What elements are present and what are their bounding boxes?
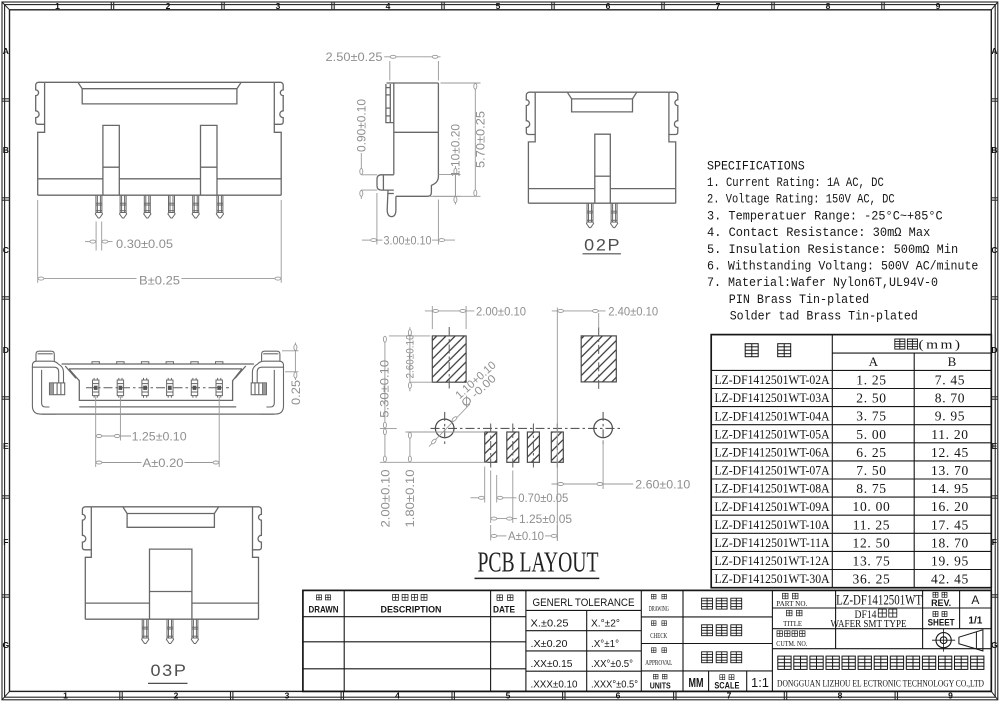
svg-text:G: G	[2, 640, 9, 650]
svg-text:E: E	[3, 441, 9, 451]
svg-text:1.25±0.05: 1.25±0.05	[519, 512, 572, 526]
svg-text:1: 1	[63, 691, 68, 701]
svg-text:DATE: DATE	[493, 604, 515, 614]
svg-text:0.30±0.05: 0.30±0.05	[116, 237, 173, 251]
svg-text:8. 70: 8. 70	[935, 391, 966, 406]
svg-text:1.25±0.10: 1.25±0.10	[132, 429, 187, 443]
svg-text:GENERL TOLERANCE: GENERL TOLERANCE	[533, 597, 635, 609]
svg-text:10. 00: 10. 00	[853, 499, 891, 514]
svg-text:03P: 03P	[151, 662, 188, 680]
svg-text:PCB LAYOUT: PCB LAYOUT	[478, 548, 599, 579]
svg-text:8: 8	[826, 1, 831, 11]
svg-text:2. 50: 2. 50	[856, 391, 887, 406]
svg-text:7. 45: 7. 45	[935, 373, 966, 388]
svg-text:LZ-DF1412501WT-10A: LZ-DF1412501WT-10A	[715, 518, 830, 532]
svg-text:SPECIFICATIONS: SPECIFICATIONS	[707, 159, 805, 173]
svg-text:A: A	[971, 593, 979, 607]
svg-text:LZ-DF1412501WT-11A: LZ-DF1412501WT-11A	[715, 536, 830, 550]
svg-text:5. 00: 5. 00	[856, 427, 887, 442]
svg-text:SHEET: SHEET	[928, 618, 955, 628]
svg-text:A±0.10: A±0.10	[508, 529, 544, 543]
svg-text:1: 1	[55, 1, 60, 11]
svg-text:A: A	[991, 46, 997, 56]
svg-text:02P: 02P	[584, 237, 621, 255]
svg-text:DONGGUAN LIZHOU EL ECTRONIC TE: DONGGUAN LIZHOU EL ECTRONIC TECHNOLOGY C…	[777, 679, 984, 689]
svg-text:CUTM. NO.: CUTM. NO.	[776, 640, 807, 648]
svg-text:12. 45: 12. 45	[931, 445, 969, 460]
svg-text:1. Current Rating: 1A AC, DC: 1. Current Rating: 1A AC, DC	[707, 176, 884, 190]
svg-text:2: 2	[166, 1, 171, 11]
svg-text:6: 6	[606, 1, 611, 11]
svg-text:2.60±0.10: 2.60±0.10	[405, 335, 417, 379]
svg-text:42. 45: 42. 45	[931, 572, 969, 587]
svg-text:LZ-DF1412501WT-07A: LZ-DF1412501WT-07A	[715, 464, 830, 478]
svg-text:14. 95: 14. 95	[931, 481, 969, 496]
svg-text:LZ-DF1412501WT-03A: LZ-DF1412501WT-03A	[715, 391, 830, 405]
svg-text:REV.: REV.	[931, 598, 951, 608]
svg-text:4: 4	[386, 1, 391, 11]
svg-text:SCALE: SCALE	[714, 680, 739, 690]
svg-text:9: 9	[936, 1, 941, 11]
svg-text:5.70±0.25: 5.70±0.25	[474, 111, 488, 168]
svg-text:6. 25: 6. 25	[856, 445, 887, 460]
svg-text:2.00±0.10: 2.00±0.10	[378, 469, 392, 527]
svg-text:DRAWING: DRAWING	[649, 604, 669, 613]
svg-text:2. Voltage Rating: 150V AC, DC: 2. Voltage Rating: 150V AC, DC	[707, 193, 895, 207]
svg-text:1.80±0.10: 1.80±0.10	[403, 469, 417, 527]
svg-text:.XX±0.15: .XX±0.15	[531, 659, 573, 670]
svg-text:3: 3	[285, 691, 290, 701]
svg-text:36. 25: 36. 25	[853, 572, 891, 587]
svg-text:6. Withstanding Voltang: 500V: 6. Withstanding Voltang: 500V AC/minute	[707, 260, 978, 274]
svg-text:5: 5	[496, 1, 501, 11]
svg-text:LZ-DF1412501WT-02A: LZ-DF1412501WT-02A	[715, 373, 830, 387]
svg-text:.XXX±0.10: .XXX±0.10	[531, 679, 578, 690]
svg-text:8. 75: 8. 75	[856, 481, 887, 496]
svg-text:LZ-DF1412501WT-05A: LZ-DF1412501WT-05A	[715, 427, 830, 441]
svg-text:B±0.25: B±0.25	[139, 274, 180, 288]
svg-text:UNITS: UNITS	[650, 681, 671, 690]
svg-text:LZ-DF1412501WT-08A: LZ-DF1412501WT-08A	[715, 482, 830, 496]
svg-text:LZ-DF1412501WT-04A: LZ-DF1412501WT-04A	[715, 409, 830, 423]
svg-text:3. 75: 3. 75	[856, 409, 887, 424]
svg-text:.X±0.20: .X±0.20	[531, 639, 568, 650]
svg-text:PART NO.: PART NO.	[776, 599, 807, 608]
svg-text:DESCRIPTION: DESCRIPTION	[381, 604, 442, 614]
svg-text:0.25: 0.25	[289, 380, 303, 405]
svg-text:Solder tad Brass Tin-plated: Solder tad Brass Tin-plated	[730, 310, 918, 324]
svg-text:X.±0.25: X.±0.25	[531, 619, 569, 630]
svg-text:1/1: 1/1	[968, 614, 982, 626]
svg-text:D: D	[3, 345, 9, 355]
svg-text:1. 25: 1. 25	[856, 373, 887, 388]
svg-text:16. 20: 16. 20	[931, 499, 969, 514]
svg-text:A±0.20: A±0.20	[143, 456, 184, 470]
svg-text:LZ-DF1412501WT-09A: LZ-DF1412501WT-09A	[715, 500, 830, 514]
svg-text:B: B	[948, 354, 957, 369]
svg-text:9. 95: 9. 95	[935, 409, 966, 424]
svg-text:.X°±1°: .X°±1°	[591, 639, 619, 650]
svg-text:A: A	[3, 46, 9, 56]
svg-text:1:1: 1:1	[751, 675, 769, 690]
svg-text:X.°±2°: X.°±2°	[591, 619, 620, 630]
svg-text:CHECK: CHECK	[650, 631, 667, 640]
svg-text:.XXX°±0.5°: .XXX°±0.5°	[591, 679, 638, 690]
svg-text:A: A	[869, 354, 879, 369]
svg-text:19. 95: 19. 95	[931, 554, 969, 569]
svg-text:B: B	[991, 145, 997, 155]
svg-text:7. Material:Wafer Nylon6T,UL94: 7. Material:Wafer Nylon6T,UL94V-0	[707, 276, 938, 290]
svg-text:3. Temperatuer Range: -25°C~+8: 3. Temperatuer Range: -25°C~+85°C	[707, 209, 943, 223]
svg-text:1.10±0.20: 1.10±0.20	[449, 124, 463, 177]
svg-text:LZ-DF1412501WT-06A: LZ-DF1412501WT-06A	[715, 446, 830, 460]
svg-text:12. 50: 12. 50	[853, 535, 891, 550]
svg-text:0.70±0.05: 0.70±0.05	[518, 491, 568, 505]
svg-text:WAFER SMT TYPE: WAFER SMT TYPE	[831, 619, 907, 630]
svg-text:DRAWN: DRAWN	[309, 604, 339, 614]
svg-text:3.00±0.10: 3.00±0.10	[384, 233, 432, 247]
svg-text:(mm): (mm)	[919, 338, 963, 352]
svg-text:3: 3	[276, 1, 281, 11]
svg-text:7: 7	[716, 1, 721, 11]
svg-text:13. 70: 13. 70	[931, 463, 969, 478]
svg-text:11. 20: 11. 20	[931, 427, 968, 442]
svg-text:2.60±0.10: 2.60±0.10	[635, 477, 690, 491]
svg-text:PIN Brass Tin-plated: PIN Brass Tin-plated	[729, 293, 869, 307]
svg-text:7. 50: 7. 50	[856, 463, 887, 478]
svg-text:E: E	[992, 441, 998, 451]
svg-text:D: D	[991, 345, 997, 355]
svg-text:5. Insulation Resistance: 500m: 5. Insulation Resistance: 500mΩ Min	[707, 243, 958, 257]
svg-text:TITLE: TITLE	[783, 619, 803, 628]
svg-text:LZ-DF1412501WT-12A: LZ-DF1412501WT-12A	[715, 554, 830, 568]
svg-text:2.00±0.10: 2.00±0.10	[476, 304, 526, 318]
svg-text:11. 25: 11. 25	[853, 517, 890, 532]
svg-text:C: C	[3, 245, 9, 255]
svg-text:2: 2	[174, 691, 179, 701]
svg-text:2.40±0.10: 2.40±0.10	[608, 304, 658, 318]
svg-text:13. 75: 13. 75	[853, 554, 891, 569]
svg-text:APPROVAL: APPROVAL	[645, 658, 672, 667]
svg-text:LZ-DF1412501WT-30A: LZ-DF1412501WT-30A	[715, 572, 830, 586]
svg-text:F: F	[3, 537, 8, 547]
svg-text:2.50±0.25: 2.50±0.25	[326, 50, 383, 64]
svg-text:LZ-DF1412501WT: LZ-DF1412501WT	[836, 592, 922, 608]
svg-text:17. 45: 17. 45	[931, 517, 969, 532]
svg-text:18. 70: 18. 70	[931, 535, 969, 550]
svg-text:F: F	[992, 537, 997, 547]
svg-text:MM: MM	[689, 676, 704, 690]
svg-text:.XX°±0.5°: .XX°±0.5°	[591, 659, 633, 670]
svg-text:B: B	[3, 145, 9, 155]
svg-text:5.30±0.10: 5.30±0.10	[378, 360, 392, 418]
svg-text:C: C	[991, 245, 997, 255]
svg-text:0.90±0.10: 0.90±0.10	[355, 99, 369, 152]
svg-text:4. Contact Resistance: 30mΩ Ma: 4. Contact Resistance: 30mΩ Max	[707, 226, 930, 240]
